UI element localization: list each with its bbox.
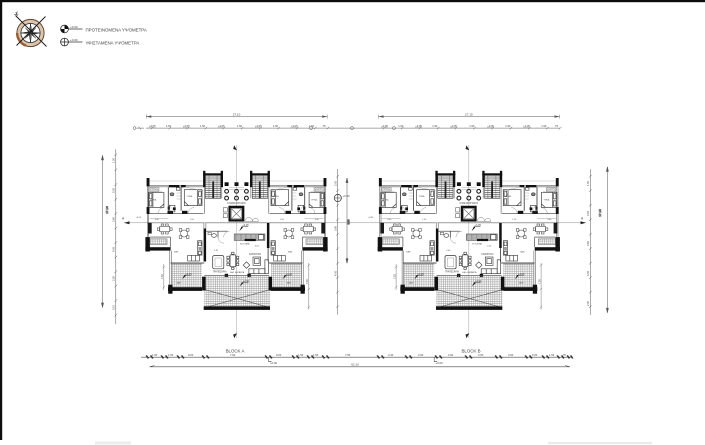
- svg-text:+0.00: +0.00: [70, 25, 78, 29]
- svg-text:3.60: 3.60: [418, 353, 424, 357]
- svg-text:3.40: 3.40: [388, 353, 394, 357]
- svg-text:1.50: 1.50: [586, 180, 590, 186]
- svg-text:3.60: 3.60: [586, 240, 590, 246]
- svg-text:ΚΑΛ. ΒΕΡΑΝΤΑ: ΚΑΛ. ΒΕΡΑΝΤΑ: [230, 271, 245, 274]
- svg-text:4.05: 4.05: [586, 270, 590, 276]
- svg-text:ΥΠΝΔ.: ΥΠΝΔ.: [311, 199, 318, 202]
- svg-text:1.50: 1.50: [168, 353, 174, 357]
- svg-text:1.50: 1.50: [549, 353, 555, 357]
- svg-text:1.50: 1.50: [313, 353, 319, 357]
- svg-text:2.50: 2.50: [586, 300, 590, 306]
- svg-text:1.50: 1.50: [112, 157, 116, 163]
- svg-text:17.10: 17.10: [598, 209, 602, 217]
- svg-text:27.10: 27.10: [233, 112, 241, 116]
- svg-text:.75: .75: [322, 124, 326, 128]
- svg-text:3.60: 3.60: [112, 216, 116, 222]
- svg-text:ΚΟΥΖΙΝΑ: ΚΟΥΖΙΝΑ: [240, 243, 250, 246]
- svg-text:1.50: 1.50: [200, 124, 206, 128]
- svg-text:ΚΑΘΙΣΤΙΚΟ: ΚΑΘΙΣΤΙΚΟ: [249, 253, 261, 256]
- svg-text:1.50: 1.50: [166, 124, 172, 128]
- svg-text:62.10: 62.10: [351, 363, 359, 367]
- svg-text:ΚΑΘ.: ΚΑΘ.: [288, 250, 293, 253]
- svg-text:3.00: 3.00: [188, 353, 194, 357]
- svg-text:7.90: 7.90: [306, 279, 309, 284]
- svg-text:+2.90: +2.90: [243, 280, 250, 283]
- svg-text:3.60: 3.60: [508, 353, 514, 357]
- svg-text:ΠΡΟΤΕΙΝΟΜΕΝΑ ΥΨΟΜΕΤΡΑ: ΠΡΟΤΕΙΝΟΜΕΝΑ ΥΨΟΜΕΤΡΑ: [86, 27, 147, 32]
- svg-text:1.50: 1.50: [273, 124, 279, 128]
- svg-text:+3.05: +3.05: [136, 217, 142, 219]
- svg-text:BLOCK B: BLOCK B: [461, 349, 480, 354]
- svg-text:3.60: 3.60: [478, 353, 484, 357]
- svg-text:+0.00: +0.00: [436, 361, 444, 365]
- svg-text:ΥΦΙΣΤΑΜΕΝΑ ΥΨΟΜΕΤΡΑ: ΥΦΙΣΤΑΜΕΝΑ ΥΨΟΜΕΤΡΑ: [86, 40, 140, 45]
- svg-text:1.50: 1.50: [237, 124, 243, 128]
- svg-text:1.50: 1.50: [309, 124, 315, 128]
- svg-text:ΒΕΡ.: ΒΕΡ.: [177, 283, 182, 285]
- svg-text:7.50: 7.50: [161, 274, 164, 279]
- svg-text:3.05: 3.05: [112, 187, 116, 193]
- svg-text:3.05: 3.05: [586, 210, 590, 216]
- svg-text:ΥΠΝΔ.: ΥΠΝΔ.: [273, 195, 280, 198]
- svg-text:ΥΠΝΔ.: ΥΠΝΔ.: [151, 199, 158, 202]
- svg-text:7.50: 7.50: [345, 353, 351, 357]
- svg-text:+3.05: +3.05: [286, 273, 293, 276]
- svg-text:2.00: 2.00: [532, 353, 538, 357]
- svg-text:ΤΡΑΠΕΖΑΡΙΑ: ΤΡΑΠΕΖΑΡΙΑ: [213, 270, 228, 273]
- svg-text:+0.00: +0.00: [270, 361, 278, 365]
- svg-text:ΚΑΘ.: ΚΑΘ.: [174, 250, 179, 253]
- svg-text:+3.05: +3.05: [185, 273, 192, 276]
- svg-text:17.10: 17.10: [105, 206, 109, 214]
- svg-text:3.60: 3.60: [448, 353, 454, 357]
- svg-text:ΒΕΡ.: ΒΕΡ.: [287, 283, 292, 285]
- svg-text:1.50: 1.50: [298, 353, 304, 357]
- svg-text:3.60: 3.60: [333, 225, 337, 231]
- svg-text:3.00: 3.00: [276, 353, 282, 357]
- svg-text:+0.00: +0.00: [343, 194, 351, 198]
- svg-text:8.90: 8.90: [346, 219, 350, 225]
- svg-text:3.05: 3.05: [333, 180, 337, 186]
- svg-text:2.50: 2.50: [112, 275, 116, 281]
- svg-text:4.05: 4.05: [112, 246, 116, 252]
- svg-text:+0.00: +0.00: [70, 38, 78, 42]
- svg-text:1.50: 1.50: [152, 353, 158, 357]
- svg-text:+3.05: +3.05: [242, 224, 249, 227]
- svg-text:3.10: 3.10: [112, 304, 116, 310]
- svg-text:4.05: 4.05: [333, 270, 337, 276]
- svg-text:.75: .75: [562, 353, 566, 357]
- svg-text:ΚΛΙΜΑΚΟΣΤΑΣΙΟ: ΚΛΙΜΑΚΟΣΤΑΣΙΟ: [227, 202, 246, 205]
- svg-text:BLOCK A: BLOCK A: [226, 349, 245, 354]
- svg-text:7.50: 7.50: [230, 353, 236, 357]
- svg-text:ΥΠΝΔ.: ΥΠΝΔ.: [187, 195, 194, 198]
